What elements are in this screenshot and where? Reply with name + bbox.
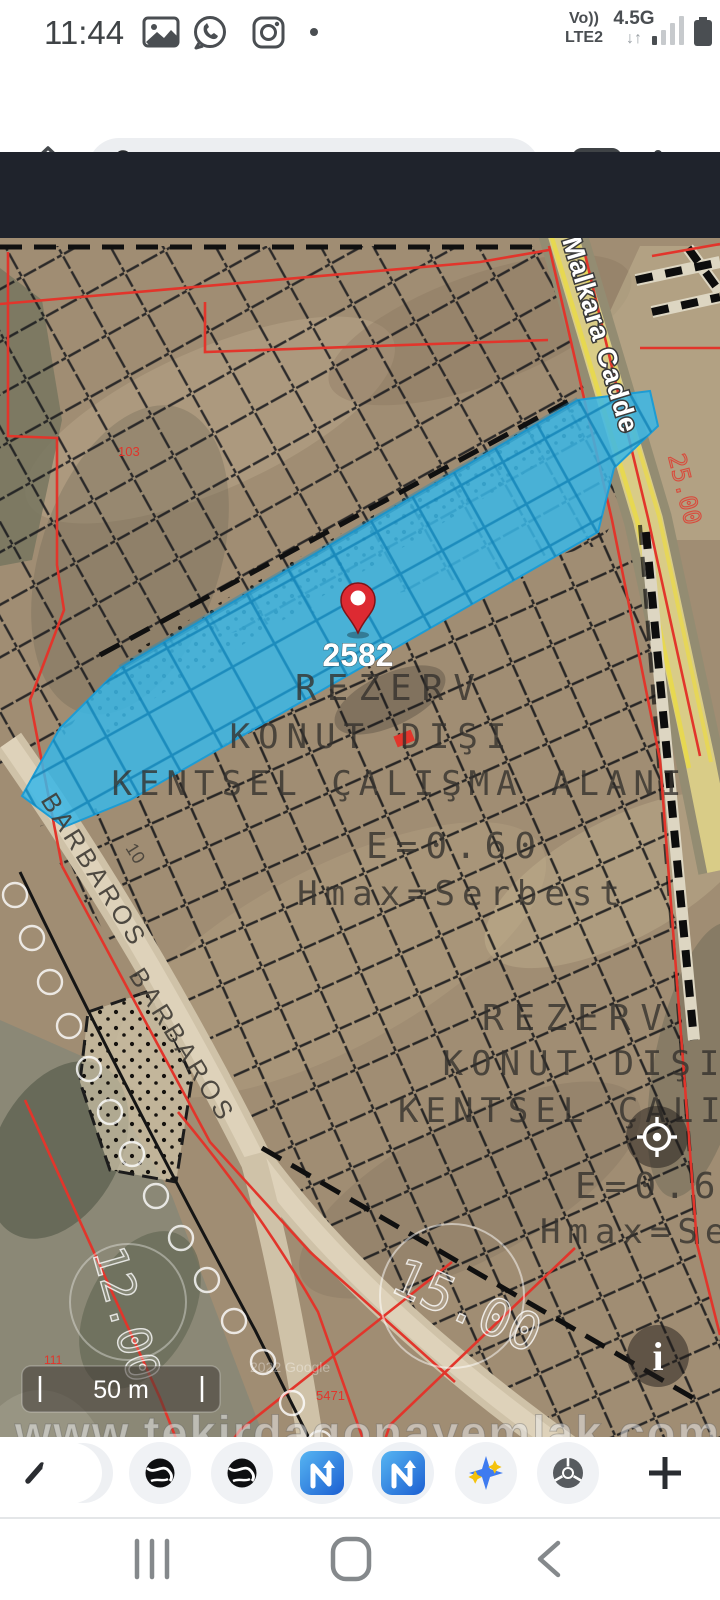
android-navigation-bar	[0, 1519, 720, 1600]
parcel-number-111: 111	[44, 1353, 63, 1367]
battery-icon	[694, 17, 712, 46]
globe-shortcut-icon-2[interactable]	[211, 1442, 273, 1504]
zone1-name: REZERV	[295, 668, 485, 709]
add-shortcut-button[interactable]	[649, 1457, 681, 1489]
lte2-indicator: LTE2	[565, 29, 603, 46]
parcel-number-5471: 5471	[316, 1388, 345, 1403]
locate-button[interactable]	[626, 1106, 688, 1168]
whatsapp-notification-icon	[196, 18, 225, 49]
blue-app-shortcut-icon-2[interactable]	[372, 1442, 434, 1504]
blue-app-shortcut-icon-1[interactable]	[291, 1442, 353, 1504]
data-arrows-icon: ↓↑	[626, 30, 642, 47]
clock: 11:44	[44, 14, 124, 52]
parcel-number-103: 103	[118, 444, 140, 459]
info-icon: i	[652, 1334, 663, 1379]
chrome-shortcut-icon[interactable]	[537, 1442, 599, 1504]
info-button[interactable]: i	[627, 1325, 689, 1387]
status-bar: 11:44 Vo)) LTE2 4.5G	[0, 0, 720, 62]
partial-icon-bubble[interactable]	[42, 1443, 113, 1503]
zone1-emsal: E=0.60	[366, 826, 544, 867]
zone2-name: REZERV	[482, 998, 672, 1039]
back-button[interactable]	[540, 1543, 558, 1575]
globe-shortcut-icon-1[interactable]	[129, 1442, 191, 1504]
gis-app-toolbar: 0/2582 bar Tam	[0, 152, 720, 238]
parcel-pin-label: 2582	[322, 637, 393, 673]
phone-screen: 11:44 Vo)) LTE2 4.5G	[0, 0, 720, 1600]
network-type: 4.5G	[613, 8, 654, 29]
signal-strength-icon	[652, 16, 684, 45]
instagram-notification-icon	[254, 18, 283, 47]
browser-address-bar: os.suleymanpasa.bel.tr:8080 3	[0, 62, 720, 152]
sparkle-shortcut-icon[interactable]	[455, 1442, 517, 1504]
more-notifications-dot	[310, 28, 318, 36]
zone2-hmax: Hmax=Serbest	[540, 1212, 720, 1252]
gallery-notification-icon	[144, 18, 178, 46]
scale-label: 50 m	[93, 1376, 149, 1404]
zone2-line2: KONUT DIŞI	[443, 1044, 720, 1084]
map-attribution: 2022 Google	[250, 1359, 330, 1375]
home-button[interactable]	[333, 1539, 369, 1579]
recents-button[interactable]	[137, 1541, 167, 1577]
map-viewport[interactable]: REZERV KONUT DIŞI KENTSEL ÇALIŞMA ALANI …	[0, 238, 720, 1600]
zone1-line2: KONUT DIŞI	[230, 717, 515, 757]
zone2-emsal: E=0.60	[575, 1166, 720, 1207]
volte-indicator: Vo))	[569, 10, 599, 27]
zone1-line3: KENTSEL ÇALIŞMA ALANI	[112, 764, 689, 804]
browser-quick-toolbar	[0, 1437, 720, 1517]
zone1-hmax: Hmax=Serbest	[297, 874, 627, 914]
